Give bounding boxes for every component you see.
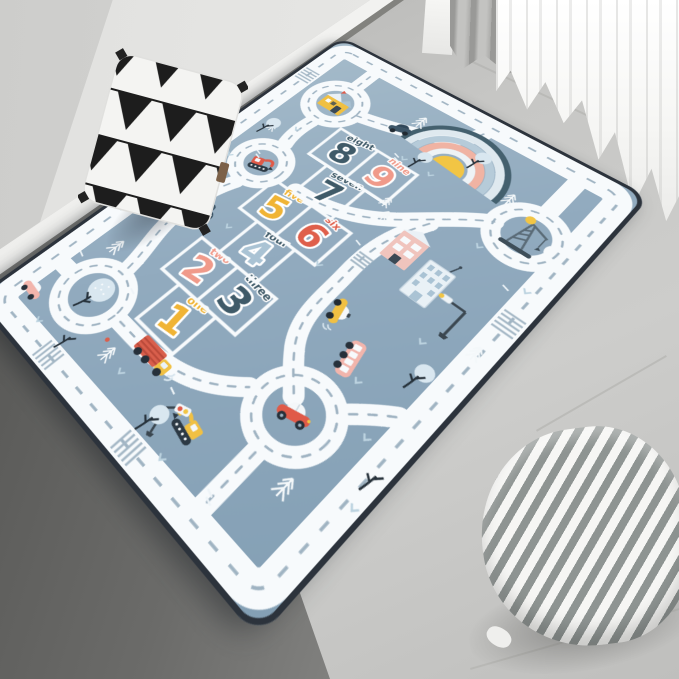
room-scene: one 1 two 2 three 3 four 4 xyxy=(0,0,679,679)
triangle-pillow xyxy=(78,42,248,242)
